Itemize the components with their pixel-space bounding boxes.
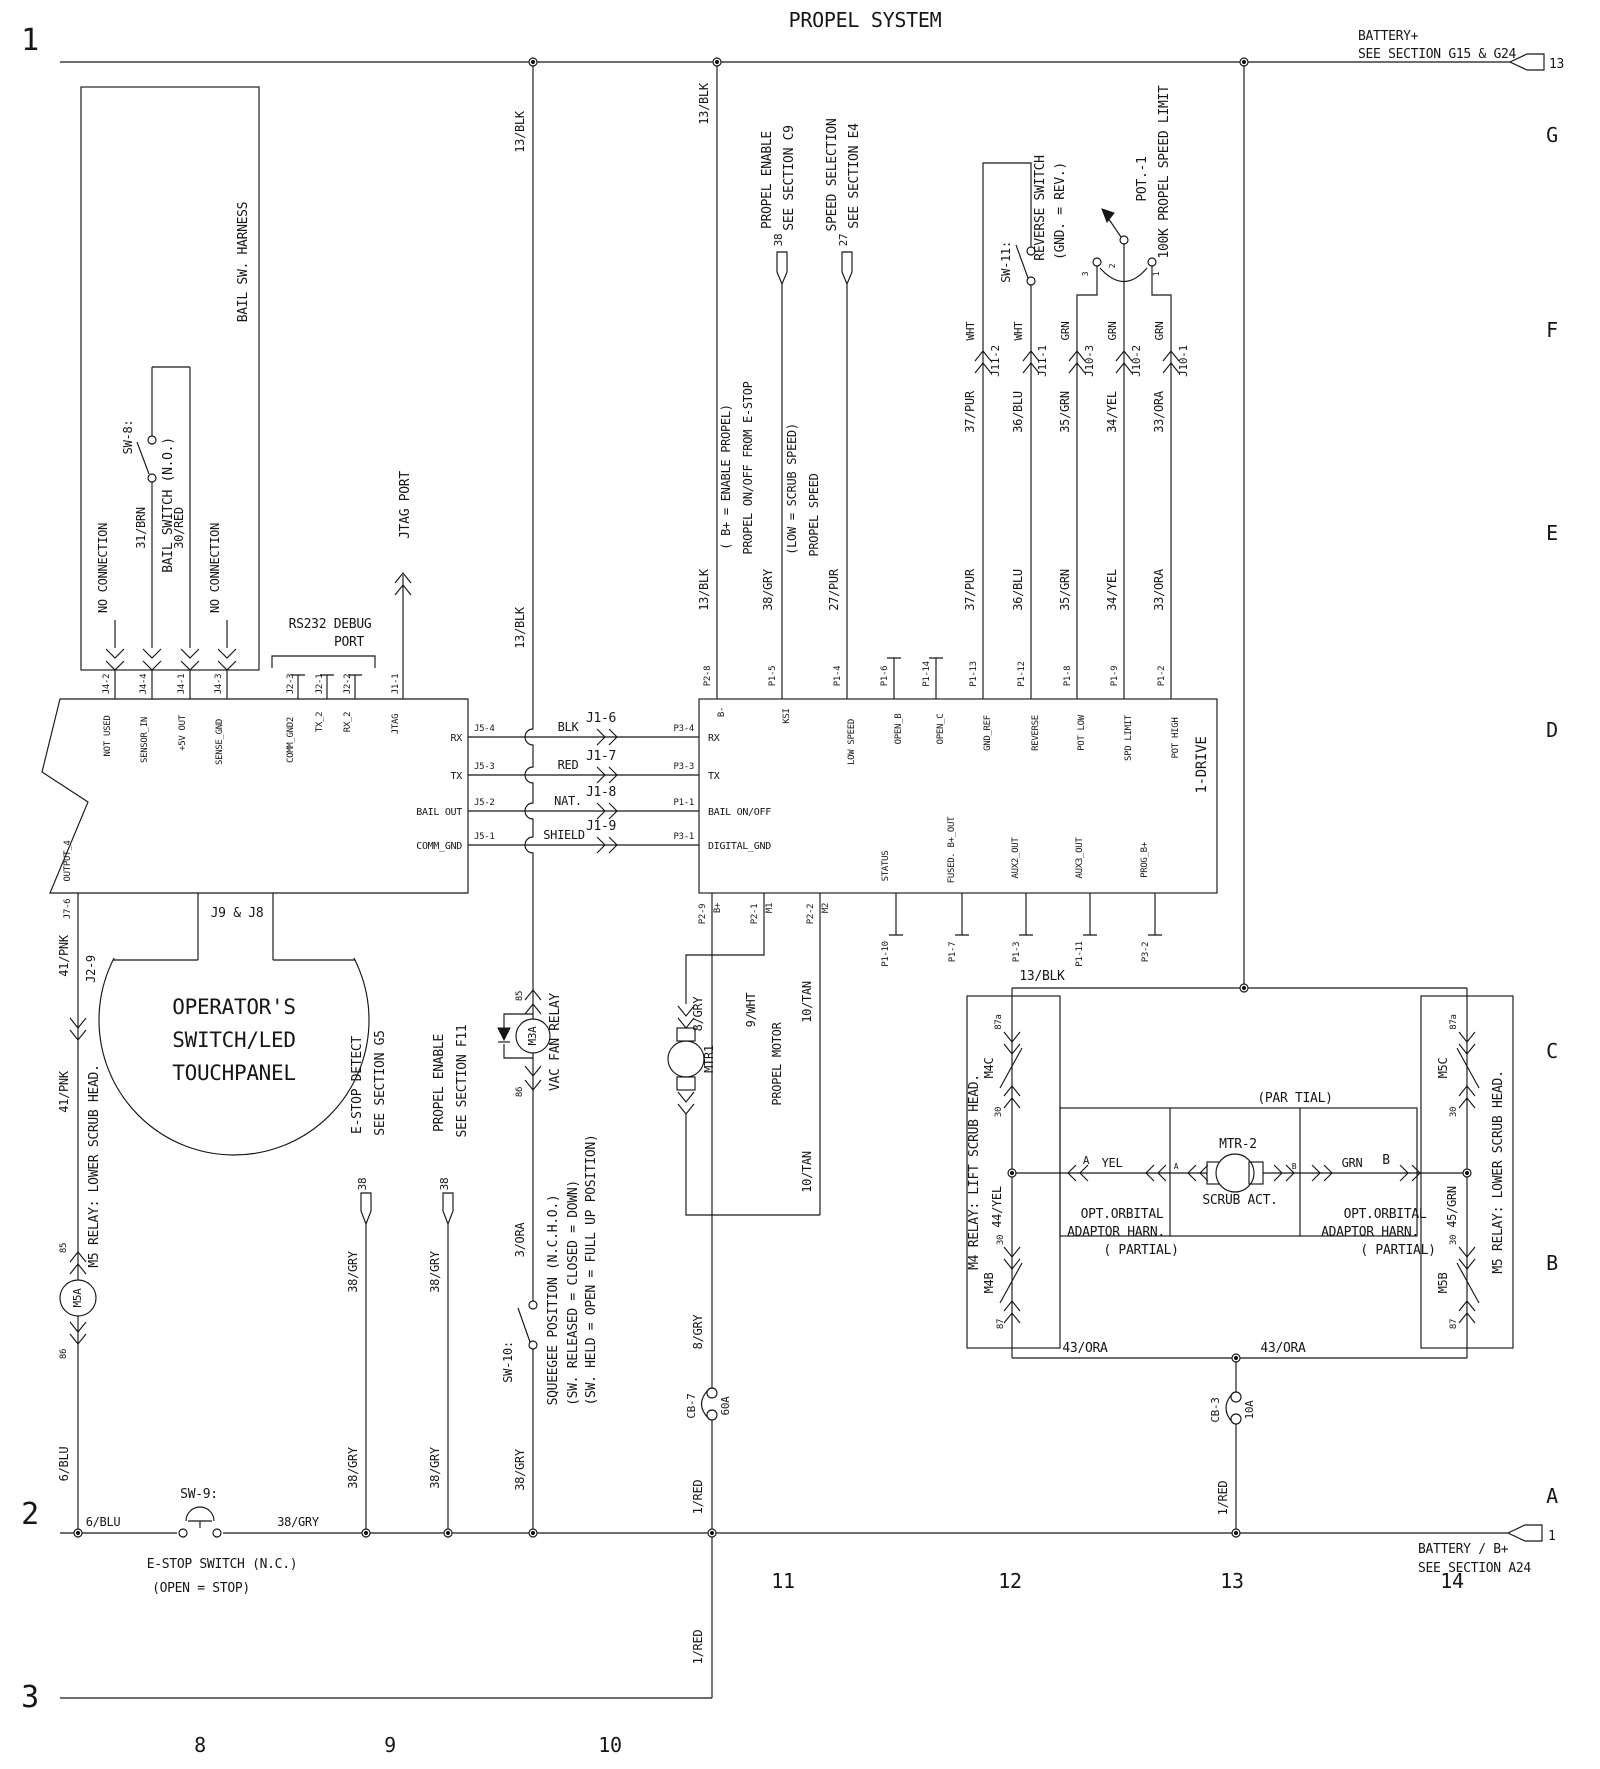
signal-label: STATUS (881, 851, 891, 882)
wire-label: 44/YEL (990, 1186, 1004, 1228)
signal-label: B+ (713, 902, 723, 913)
schematic-sheet: PROPEL SYSTEMBATTERY+SEE SECTION G15 & G… (0, 0, 1600, 1769)
component-rating: 60A (719, 1396, 732, 1416)
component-label: OPERATOR'S (172, 995, 295, 1019)
estop-detect-flag-chain (361, 1193, 371, 1533)
grid-row-letter: D (1546, 718, 1558, 742)
component-label: ADAPTOR HARN. (1321, 1225, 1419, 1240)
pin-label: J11-2 (989, 345, 1002, 377)
component-ref: CB-3 (1209, 1397, 1222, 1422)
signal-label: JTAG (391, 714, 401, 734)
signal-label: TX (708, 771, 720, 782)
pin-label: P1-1 (674, 798, 694, 808)
pin-label: P2-1 (750, 904, 760, 924)
signal-label: GND_REF (983, 715, 993, 751)
junction-dots (74, 58, 1471, 1537)
note: PROPEL ENABLE (760, 131, 775, 229)
note: SQUEEGEE POSITION (N.C.H.O.) (546, 1195, 561, 1406)
wire-label: 36/BLU (1011, 391, 1025, 433)
sw10-contact (529, 1341, 537, 1349)
pin-label: P1-6 (880, 666, 890, 686)
terminal-label: 30 (996, 1235, 1006, 1245)
grid-row-label: 2 (21, 1497, 39, 1532)
wire-label: YEL (1102, 1156, 1123, 1170)
wire-label: 10/TAN (800, 1151, 814, 1193)
terminal-label: 30 (994, 1107, 1004, 1117)
wire-label: 30/RED (172, 507, 186, 549)
pin-label: J5-2 (474, 798, 494, 808)
section-ref: SEE SECTION F11 (455, 1025, 470, 1138)
wire-label: GRN (1342, 1156, 1363, 1170)
wire-label: 43/ORA (1062, 1341, 1108, 1356)
component-ref: CB-7 (685, 1393, 698, 1418)
wire-label: 33/ORA (1152, 568, 1166, 611)
pin-label: J2-2 (343, 674, 353, 694)
component-ref: SW-11: (999, 241, 1013, 283)
pin-label: J10-2 (1130, 345, 1143, 377)
signal-label: OPEN_B (894, 714, 904, 745)
wire-label: 38/GRY (761, 568, 775, 611)
grid-col-label: 12 (998, 1569, 1021, 1593)
component-label: SWITCH/LED (172, 1028, 295, 1052)
wire-label: 41/PNK (57, 1070, 71, 1113)
wire-label: 3/ORA (513, 1222, 527, 1258)
wire-label: 38/GRY (346, 1446, 360, 1489)
signal-label: BAIL ON/OFF (708, 807, 771, 818)
signal-label: REVERSE (1031, 715, 1041, 751)
terminal-label: B (1292, 1162, 1297, 1171)
component-ref: SW-9: (180, 1487, 218, 1502)
signal-label: M2 (821, 903, 831, 913)
signal-label: RX (451, 733, 463, 744)
grid-rails (60, 54, 1544, 1698)
wire-label: 13/BLK (697, 82, 711, 125)
sw8-contact (148, 474, 156, 482)
terminal-label: A (1174, 1162, 1179, 1171)
section-ref: SEE SECTION C9 (782, 125, 797, 230)
pin-label: J4-2 (102, 674, 112, 694)
signal-label: BAIL OUT (416, 807, 462, 818)
pin-label: J1-8 (586, 785, 616, 800)
pin-label: J2-3 (286, 674, 296, 694)
wire-label: 9/WHT (744, 993, 758, 1028)
pin-label: P1-13 (969, 661, 979, 687)
motor-symbol (668, 1041, 704, 1077)
grid-row-letter: A (1546, 1484, 1558, 1508)
wire-label: 38/GRY (346, 1250, 360, 1293)
wire-label: 27/PUR (827, 568, 841, 611)
wire-label: WHT (964, 321, 977, 341)
sw8-blade (137, 442, 149, 474)
pin-label: J5-4 (474, 724, 494, 734)
pin-label: J2-1 (315, 674, 325, 694)
pin-label: P1-11 (1075, 941, 1085, 967)
grid-col-label: 13 (1220, 1569, 1243, 1593)
wire-label: 37/PUR (963, 568, 977, 611)
scrub-head-block (967, 988, 1513, 1533)
terminal-label: B (1382, 1153, 1390, 1168)
component-label: JTAG PORT (398, 471, 413, 539)
component-ref: MTR1 (702, 1045, 716, 1073)
wire-label: NO CONNECTION (208, 523, 222, 613)
pin-label: J7-6 (63, 899, 73, 919)
flag-number: 38 (438, 1178, 451, 1191)
grid-row-label: 3 (21, 1680, 39, 1715)
terminal-label: 86 (515, 1087, 525, 1097)
wire-label: 1/RED (691, 1630, 705, 1665)
pin-label: J9 & J8 (211, 906, 264, 921)
wire-label: 36/BLU (1011, 569, 1025, 611)
component-label: SCRUB ACT. (1202, 1193, 1277, 1208)
section-ref: SEE SECTION G15 & G24 (1358, 47, 1517, 62)
signal-label: RX_2 (343, 712, 353, 732)
signal-label: NOT USED (103, 716, 113, 757)
terminal-label: A (1083, 1154, 1090, 1167)
pin-label: J10-3 (1083, 345, 1096, 377)
grid-row-letter: B (1546, 1251, 1558, 1275)
note: ( B+ = ENABLE PROPEL) (719, 404, 733, 549)
grid-row-letter: F (1546, 318, 1558, 342)
signal-label: RX (708, 733, 720, 744)
component-label: 1-DRIVE (1194, 737, 1210, 794)
pin-label: P2-9 (698, 904, 708, 924)
flag-number: 38 (356, 1178, 369, 1191)
component-ref: M5C (1436, 1058, 1450, 1079)
pin-label: J5-3 (474, 762, 494, 772)
pin-label: P1-7 (948, 942, 958, 962)
signal-label: LOW SPEED (847, 719, 857, 765)
pin-label: P1-4 (833, 666, 843, 686)
terminal-label: 30 (1449, 1107, 1459, 1117)
pin-label: P1-14 (922, 661, 932, 687)
wire-label: 34/YEL (1105, 391, 1119, 433)
component-label: TOUCHPANEL (172, 1061, 295, 1085)
wire-label: 13/BLK (1019, 969, 1065, 984)
grid-row-letter: E (1546, 521, 1558, 545)
grid-col-label: 8 (194, 1733, 206, 1757)
component-label: M4 RELAY: LIFT SCRUB HEAD. (967, 1074, 982, 1270)
wire-label: SHIELD (543, 828, 585, 842)
wire-label: 13/BLK (697, 568, 711, 611)
grid-row-letter: G (1546, 123, 1558, 147)
pin-label: P3-1 (674, 832, 694, 842)
pin-label: P1-5 (768, 666, 778, 686)
off-sheet-arrow (1508, 1525, 1542, 1541)
wire-13blk-vacfan (498, 62, 550, 1533)
pin-label: P1-12 (1017, 661, 1027, 687)
component-label: VAC FAN RELAY (548, 993, 563, 1091)
section-ref: SEE SECTION G5 (373, 1030, 388, 1135)
terminal-label: 2 (1108, 263, 1117, 268)
component-label: ADAPTOR HARN. (1067, 1225, 1165, 1240)
component-label: OPT.ORBITAL (1344, 1207, 1427, 1222)
propel-enable-flag-chain (443, 1193, 453, 1533)
note: PROPEL ON/OFF FROM E-STOP (741, 381, 755, 554)
pin-label: P3-2 (1141, 942, 1151, 962)
signal-label: AUX3_OUT (1075, 837, 1085, 879)
sw10-contact (529, 1301, 537, 1309)
note: (LOW = SCRUB SPEED) (785, 423, 799, 555)
wire-label: 13/BLK (513, 110, 527, 153)
grid-col-label: 11 (771, 1569, 794, 1593)
signal-label: SENSOR_IN (140, 717, 150, 763)
sw9-estop-switch (177, 1507, 223, 1539)
sw10-blade (518, 1308, 530, 1342)
wire-label: NAT. (554, 794, 582, 808)
terminal-label: 1 (1152, 271, 1161, 276)
note: PROPEL SPEED (807, 473, 821, 556)
scrub-actuator-motor (1216, 1154, 1254, 1192)
wire-label: WHT (1012, 321, 1025, 341)
pin-label: P1-3 (1012, 942, 1022, 962)
wire-label: GRN (1059, 322, 1072, 341)
wire-label: GRN (1106, 322, 1119, 341)
note: SPEED SELECTION (825, 119, 840, 232)
connector-chevrons (106, 649, 236, 670)
signal-label: AUX2_OUT (1011, 837, 1021, 879)
mtr1-propel-motor (668, 893, 820, 1215)
pin-label: P3-4 (674, 724, 694, 734)
wire-label: 41/PNK (57, 934, 71, 977)
component-ref: M4B (982, 1273, 996, 1294)
wire-label: 1/RED (1216, 1481, 1230, 1516)
terminal-label: 87 (1449, 1319, 1459, 1329)
drive-controller-box (699, 658, 1217, 935)
signal-label: FUSED. B+_OUT (947, 816, 957, 883)
off-sheet-ref: 1 (1548, 1529, 1556, 1544)
component-label: BAIL SWITCH (N.O.) (161, 437, 176, 572)
note: (OPEN = STOP) (152, 1581, 250, 1596)
wire-label: GRN (1153, 322, 1166, 341)
wire-label: NO CONNECTION (96, 523, 110, 613)
wire-label: 43/ORA (1260, 1341, 1306, 1356)
signal-label: KSI (782, 708, 792, 723)
component-ref: POT.-1 (1135, 156, 1150, 201)
terminal-label: 85 (59, 1243, 69, 1253)
wire-label: 35/GRN (1058, 569, 1072, 611)
grid-row-label: 1 (21, 23, 39, 58)
pin-label: J10-1 (1177, 345, 1190, 377)
wire-label: 38/GRY (428, 1446, 442, 1489)
component-label: M5 RELAY: LOWER SCRUB HEAD. (1491, 1070, 1506, 1273)
note: (PAR TIAL) (1257, 1091, 1332, 1106)
signal-label: PROG_B+ (1140, 841, 1150, 878)
component-label: PORT (334, 635, 365, 650)
wire-label: 6/BLU (57, 1447, 71, 1482)
sw8-contact (148, 436, 156, 444)
note: ( PARTIAL) (1103, 1243, 1178, 1258)
signal-label: POT HIGH (1171, 718, 1181, 759)
component-label: M5 RELAY: LOWER SCRUB HEAD. (87, 1064, 102, 1267)
pin-label: P3-3 (674, 762, 694, 772)
wire-label: 34/YEL (1105, 569, 1119, 611)
component-ref: M4C (982, 1058, 996, 1079)
wire-label: 8/GRY (691, 1314, 705, 1350)
grid-row-letter: C (1546, 1039, 1558, 1063)
wire-label: 33/ORA (1152, 390, 1166, 433)
signal-label: POT LOW (1077, 714, 1087, 751)
pin-label: J1-1 (391, 674, 401, 694)
terminal-label: 87a (1449, 1014, 1459, 1029)
wire-label: BLK (558, 720, 580, 734)
component-label: PROPEL MOTOR (770, 1021, 784, 1105)
pin-label: P1-8 (1063, 666, 1073, 686)
wire-label: 45/GRN (1445, 1186, 1459, 1228)
terminal-label: 85 (515, 991, 525, 1001)
signal-label: SPD LIMIT (1124, 714, 1134, 761)
section-ref: SEE SECTION E4 (847, 123, 862, 229)
pin-label: J11-1 (1036, 345, 1049, 377)
wire-label: 31/BRN (134, 507, 148, 549)
component-ref: M5B (1436, 1273, 1450, 1294)
pin-label: J5-1 (474, 832, 494, 842)
component-rating: 10A (1243, 1400, 1256, 1420)
wire-label: 38/GRY (277, 1515, 320, 1529)
component-label: RS232 DEBUG (289, 617, 372, 632)
terminal-label: 86 (59, 1349, 69, 1359)
wire-label: 38/GRY (428, 1250, 442, 1293)
component-label: 100K PROPEL SPEED LIMIT (1157, 85, 1172, 259)
wire-label: 37/PUR (963, 390, 977, 433)
signal-label: TX (451, 771, 463, 782)
pin-label: J4-3 (214, 674, 224, 694)
signal-label: M1 (765, 903, 775, 913)
signal-label: COMM_GND (416, 841, 462, 852)
pin-label: J2-9 (84, 955, 98, 983)
pin-label: P1-10 (881, 941, 891, 967)
signal-label: DIGITAL_GND (708, 841, 771, 852)
wire-label: 10/TAN (800, 981, 814, 1023)
wire-label: 35/GRN (1058, 391, 1072, 433)
terminal-label: 3 (1081, 271, 1090, 276)
wire-label: 13/BLK (513, 606, 527, 649)
flag-number: 27 (837, 234, 850, 247)
wire-label: RED (558, 758, 579, 772)
signal-label: OUTPUT_4 (63, 841, 73, 882)
off-sheet-ref: 13 (1549, 57, 1564, 72)
terminal-label: 87a (994, 1014, 1004, 1029)
pin-label: J1-9 (586, 819, 616, 834)
grid-col-label: 10 (598, 1733, 621, 1757)
component-ref: MTR-2 (1219, 1137, 1257, 1152)
wire-label: 1/RED (691, 1480, 705, 1515)
pin-label: J1-6 (586, 711, 616, 726)
pot1-speed-limit (1077, 209, 1171, 699)
pin-label: P2-2 (806, 904, 816, 924)
wire-label: 8/GRY (691, 996, 705, 1032)
note: (SW. HELD = OPEN = FULL UP POSITION) (584, 1135, 599, 1406)
note-battery-plus: BATTERY+ (1358, 29, 1419, 44)
component-ref: M3A (526, 1026, 539, 1046)
component-label: BAIL SW. HARNESS (236, 202, 251, 322)
pin-label: P1-9 (1110, 666, 1120, 686)
signal-label: SENSE_GND (215, 719, 225, 765)
note: ( PARTIAL) (1360, 1243, 1435, 1258)
pin-label: P2-8 (703, 666, 713, 686)
pin-label: J4-1 (177, 674, 187, 694)
signal-label: COMM_GND2 (286, 717, 296, 763)
terminal-label: 87 (996, 1319, 1006, 1329)
component-ref: SW-10: (501, 1341, 515, 1383)
sheet-title: PROPEL SYSTEM (789, 8, 942, 32)
note-battery-b-plus: BATTERY / B+ (1418, 1542, 1509, 1557)
pin-label: P1-2 (1157, 666, 1167, 686)
flag-number: 38 (772, 234, 785, 247)
component-ref: M5A (71, 1288, 84, 1308)
note: PROPEL ENABLE (432, 1034, 447, 1132)
grid-col-label: 9 (384, 1733, 396, 1757)
component-label: REVERSE SWITCH (1033, 155, 1048, 260)
pin-label: J4-4 (139, 674, 149, 694)
wire-label: 6/BLU (86, 1515, 121, 1529)
pin-label: J1-7 (586, 749, 616, 764)
note: (GND. = REV.) (1053, 162, 1068, 260)
signal-label: +5V OUT (178, 714, 188, 751)
component-label: E-STOP SWITCH (N.C.) (147, 1557, 298, 1572)
section-ref: SEE SECTION A24 (1418, 1561, 1531, 1576)
note: (SW. RELEASED = CLOSED = DOWN) (566, 1180, 581, 1406)
wire-label: 38/GRY (513, 1448, 527, 1491)
component-ref: SW-8: (121, 420, 135, 455)
propel-system-schematic: PROPEL SYSTEMBATTERY+SEE SECTION G15 & G… (0, 0, 1600, 1769)
note: E-STOP DETECT (350, 1036, 365, 1134)
signal-label: TX_2 (315, 712, 325, 732)
component-label: OPT.ORBITAL (1081, 1207, 1164, 1222)
section-flag-27 (842, 252, 852, 699)
signal-label: B- (717, 707, 727, 717)
signal-label: OPEN_C (936, 714, 946, 745)
terminal-label: 30 (1449, 1235, 1459, 1245)
connector-chevron (678, 1092, 694, 1114)
